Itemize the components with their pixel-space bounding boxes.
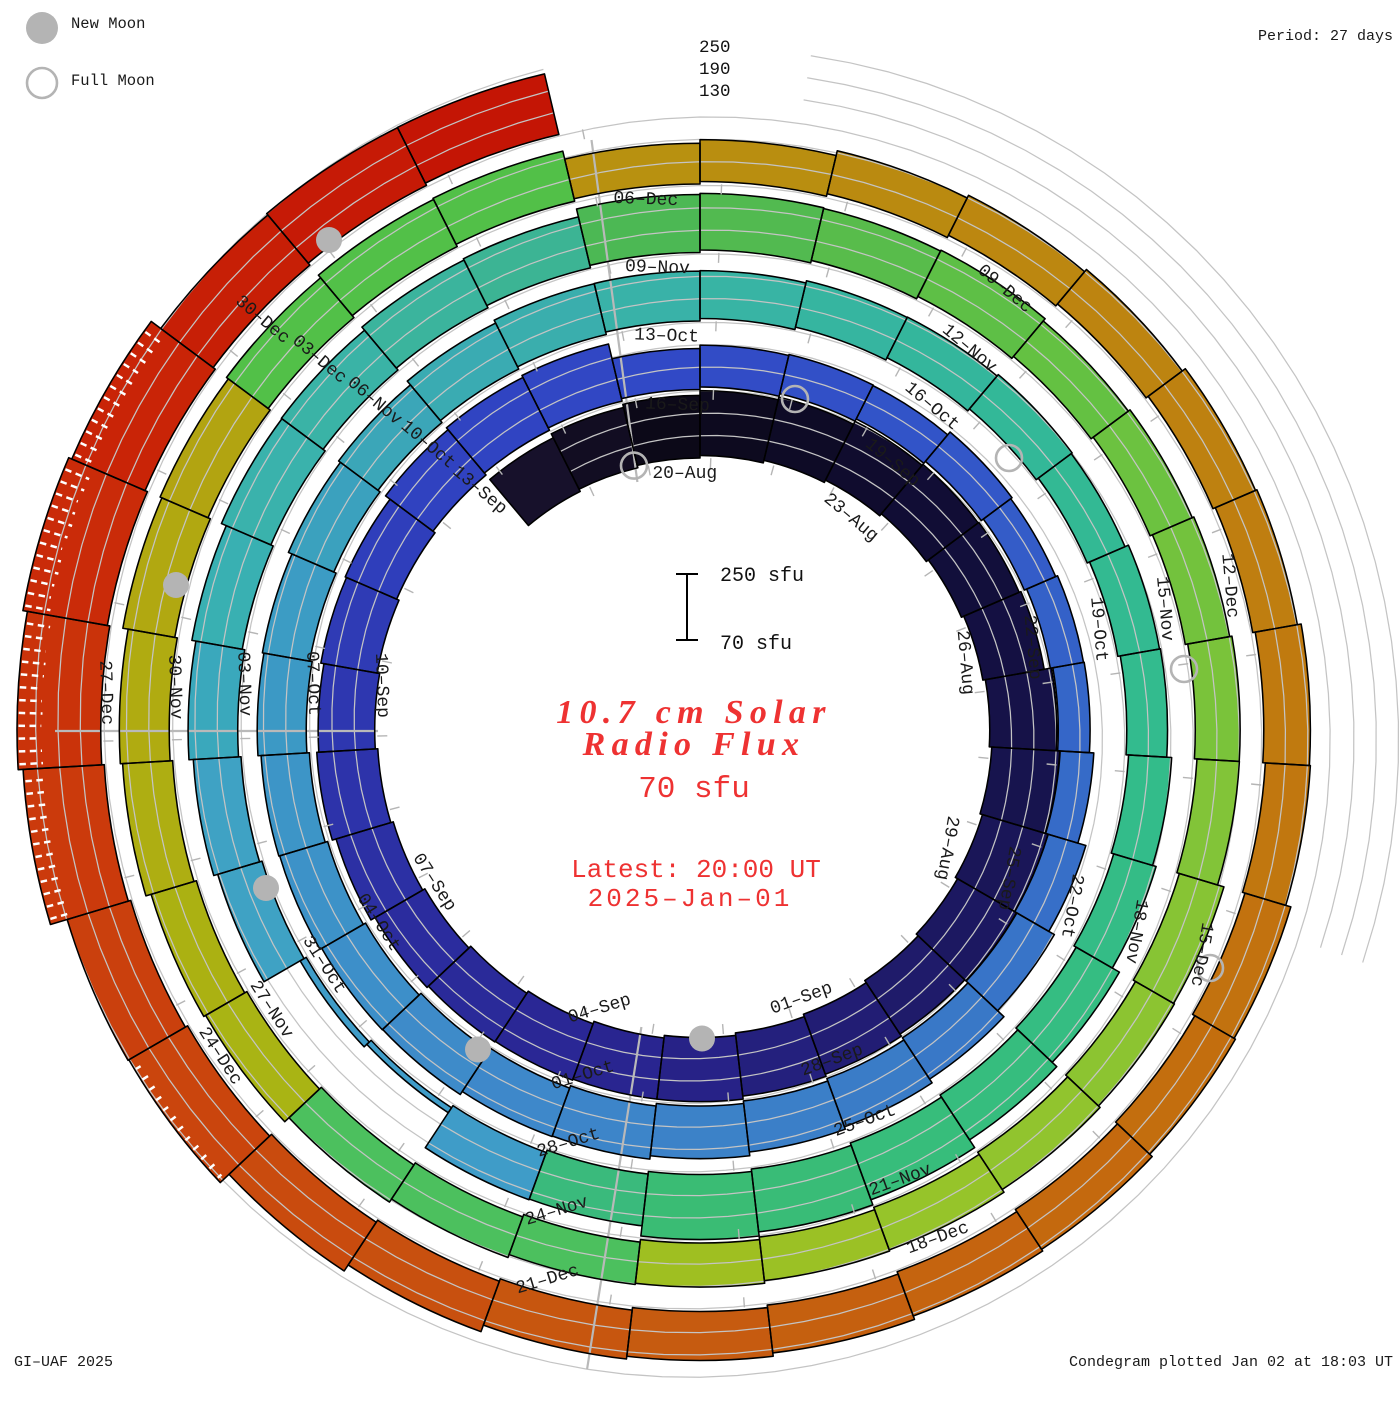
- svg-text:03–Nov: 03–Nov: [232, 651, 254, 717]
- svg-text:130: 130: [699, 82, 731, 102]
- svg-text:250: 250: [699, 38, 731, 58]
- svg-text:Radio Flux: Radio Flux: [582, 726, 806, 763]
- svg-text:27–Dec: 27–Dec: [94, 660, 116, 725]
- svg-text:10–Sep: 10–Sep: [370, 653, 392, 718]
- svg-text:Condegram plotted Jan 02 at 18: Condegram plotted Jan 02 at 18:03 UT: [1069, 1354, 1393, 1371]
- svg-text:13–Oct: 13–Oct: [634, 325, 699, 347]
- svg-text:Latest: 20:00 UT: Latest: 20:00 UT: [571, 855, 821, 885]
- svg-text:06–Dec: 06–Dec: [613, 189, 678, 211]
- svg-text:09–Nov: 09–Nov: [625, 257, 691, 279]
- svg-text:Full Moon: Full Moon: [71, 72, 155, 90]
- svg-text:GI–UAF 2025: GI–UAF 2025: [14, 1354, 113, 1371]
- svg-text:07–Oct: 07–Oct: [301, 651, 323, 716]
- svg-text:20–Aug: 20–Aug: [652, 464, 717, 484]
- svg-text:2025–Jan–01: 2025–Jan–01: [588, 884, 793, 914]
- svg-text:70 sfu: 70 sfu: [638, 772, 750, 807]
- svg-text:190: 190: [699, 60, 731, 80]
- svg-text:New Moon: New Moon: [71, 15, 145, 33]
- svg-text:Period: 27 days: Period: 27 days: [1258, 28, 1393, 45]
- svg-text:250 sfu: 250 sfu: [720, 565, 804, 588]
- svg-text:30–Nov: 30–Nov: [163, 654, 185, 720]
- svg-text:16–Sep: 16–Sep: [645, 395, 710, 417]
- svg-text:70 sfu: 70 sfu: [720, 633, 792, 656]
